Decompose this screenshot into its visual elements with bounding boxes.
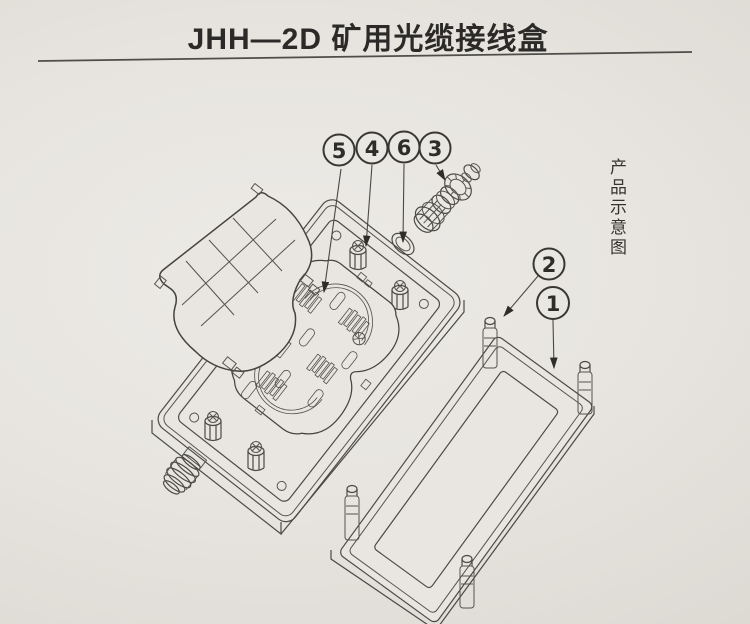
callout-6: 6 [389,132,420,163]
callout-1-number: 1 [546,292,561,316]
callout-5: 5 [324,135,355,166]
title-underline [38,52,692,61]
photographed-catalog-page: JHH—2D 矿用光缆接线盒 产品示意图 [0,0,750,624]
exploded-view-diagram: 5 4 6 3 2 1 [0,0,750,624]
callout-3: 3 [420,133,451,164]
callout-3-number: 3 [428,137,443,161]
callout-6-number: 6 [397,136,412,160]
leader-3 [436,165,445,180]
callout-1: 1 [537,287,569,319]
callout-5-number: 5 [332,139,347,163]
callout-4: 4 [357,133,388,164]
gland-ring-nut [440,169,477,206]
callout-2-number: 2 [542,253,557,277]
gland-parts-exploded [388,162,482,259]
callout-4-number: 4 [365,137,380,161]
leader-2 [504,276,538,316]
leader-6 [403,164,404,242]
gland-body [411,192,454,236]
leader-1 [553,320,554,368]
callout-2: 2 [534,249,565,280]
